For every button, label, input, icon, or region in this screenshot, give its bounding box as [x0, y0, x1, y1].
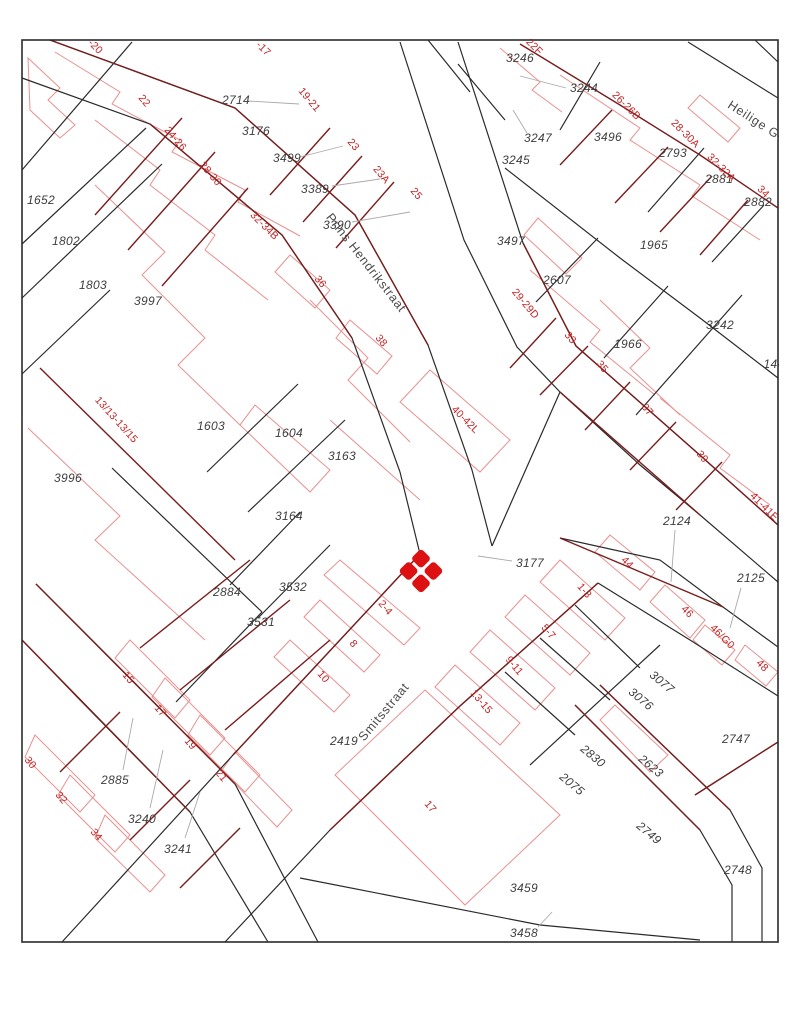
house-number-label: 41-41E [748, 491, 779, 523]
house-number-label: 32 [53, 790, 69, 806]
parcel-number-label: 2882 [744, 196, 772, 208]
parcel-number-label: 3240 [128, 813, 156, 825]
parcel-number-label: 2419 [330, 735, 358, 747]
house-number-label: 17 [152, 703, 168, 719]
parcel-number-label: 3459 [510, 882, 538, 894]
cadastral-map: 2714317634993389339016521802180339973246… [0, 0, 800, 1024]
house-number-label: 2-4 [376, 599, 394, 618]
parcel-number-label: 3499 [273, 152, 301, 164]
parcel-number-label: 3077 [647, 668, 676, 695]
parcel-number-label: 1652 [27, 194, 55, 206]
house-number-label: 13-15 [468, 688, 494, 716]
parcel-number-label: 3241 [164, 843, 192, 855]
house-number-label: 17 [422, 799, 438, 815]
house-number-label: 24-26 [162, 125, 188, 153]
parcel-number-label: 144 [764, 358, 779, 370]
parcel-number-label: 1802 [52, 235, 80, 247]
parcel-number-label: 3164 [275, 510, 303, 522]
parcel-number-label: 2830 [578, 742, 607, 769]
house-number-label: 37 [639, 402, 655, 418]
house-number-label: 34 [88, 827, 104, 843]
house-number-label: 8 [347, 638, 359, 649]
house-number-label: 10 [315, 669, 331, 685]
parcel-number-label: 3389 [301, 183, 329, 195]
parcel-number-label: 3242 [706, 319, 734, 331]
parcel-number-label: 3996 [54, 472, 82, 484]
parcel-number-label: 2793 [659, 147, 687, 159]
house-number-label: 1-3 [575, 582, 593, 601]
parcel-number-label: 3246 [506, 52, 534, 64]
house-number-label: 33 [562, 330, 578, 346]
parcel-number-label: 3997 [134, 295, 162, 307]
clover-marker-icon [398, 548, 444, 594]
house-number-label: 23 [345, 137, 361, 153]
house-number-label: 44 [619, 555, 635, 571]
parcel-number-label: 1965 [640, 239, 668, 251]
parcel-number-label: 2748 [724, 864, 752, 876]
house-number-label: -20 [86, 39, 105, 56]
house-number-label: 23A [371, 164, 391, 186]
street-name-label: Heilige Gee [726, 99, 779, 150]
street-name-label: Smitsstraat [356, 681, 411, 744]
house-number-label: 39 [694, 449, 710, 465]
house-number-label: 32-34B [248, 210, 280, 242]
house-number-label: 28-30 [197, 160, 223, 188]
house-number-label: 48 [754, 658, 770, 674]
parcel-number-label: 2884 [213, 586, 241, 598]
parcel-number-label: 2747 [722, 733, 750, 745]
parcel-number-label: 1604 [275, 427, 303, 439]
house-number-label: 46/G0 [708, 623, 736, 651]
parcel-number-label: 3244 [570, 82, 598, 94]
house-number-label: 25 [408, 186, 424, 202]
labels-layer: 2714317634993389339016521802180339973246… [21, 39, 779, 943]
parcel-number-label: 3532 [279, 581, 307, 593]
parcel-number-label: 3163 [328, 450, 356, 462]
parcel-number-label: 2607 [543, 274, 571, 286]
map-label-clip: 2714317634993389339016521802180339973246… [21, 39, 779, 943]
parcel-number-label: 3177 [516, 557, 544, 569]
house-number-label: 21 [213, 768, 229, 784]
parcel-number-label: 3247 [524, 132, 552, 144]
house-number-label: 46 [679, 604, 695, 620]
parcel-number-label: 2075 [557, 770, 586, 797]
house-number-label: 22 [136, 93, 152, 109]
parcel-number-label: 1966 [614, 338, 642, 350]
selected-parcel-marker[interactable] [398, 548, 444, 594]
parcel-number-label: 3496 [594, 131, 622, 143]
parcel-number-label: 2885 [101, 774, 129, 786]
house-number-label: 36 [312, 274, 328, 290]
house-number-label: 30 [22, 755, 38, 771]
house-number-label: 15 [120, 670, 136, 686]
parcel-number-label: 3176 [242, 125, 270, 137]
parcel-number-label: 1803 [79, 279, 107, 291]
parcel-number-label: 2125 [737, 572, 765, 584]
parcel-number-label: 2714 [222, 94, 250, 106]
house-number-label: 13/13-13/15 [93, 395, 140, 445]
parcel-number-label: 2749 [634, 819, 663, 846]
parcel-number-label: 3245 [502, 154, 530, 166]
house-number-label: 5-7 [539, 623, 557, 642]
house-number-label: 19-21 [296, 86, 322, 114]
house-number-label: -17 [254, 40, 273, 59]
house-number-label: 19 [182, 736, 198, 752]
parcel-number-label: 2623 [636, 752, 665, 779]
street-name-label: Prins Hendrikstraat [324, 211, 409, 314]
house-number-label: 38 [373, 333, 389, 349]
house-number-label: 40-42L [449, 404, 480, 435]
parcel-number-label: 2124 [663, 515, 691, 527]
parcel-number-label: 1603 [197, 420, 225, 432]
house-number-label: 26-26B [610, 90, 642, 122]
parcel-number-label: 3531 [247, 616, 275, 628]
house-number-label: 35 [594, 359, 610, 375]
parcel-number-label: 3076 [626, 685, 655, 712]
house-number-label: 9-11 [503, 655, 525, 678]
parcel-number-label: 3458 [510, 927, 538, 939]
parcel-number-label: 3497 [497, 235, 525, 247]
house-number-label: 29-29D [510, 287, 541, 321]
